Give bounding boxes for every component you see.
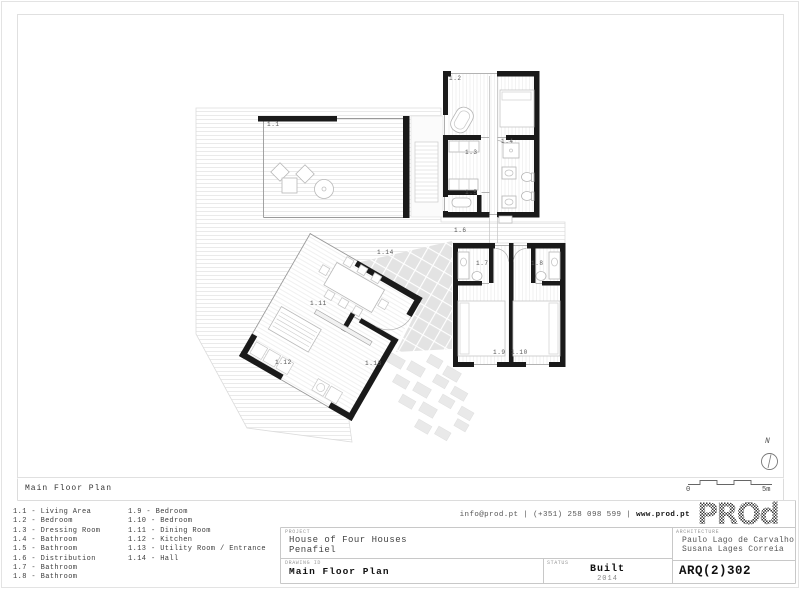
- project-location: Penafiel: [289, 545, 336, 555]
- scale-five-label: 5m: [762, 486, 770, 494]
- architecture-label: ARCHITECTURE: [676, 529, 719, 535]
- room-label-1-8: 1.8: [531, 260, 544, 267]
- legend-item: 1.7 - Bathroom: [13, 564, 100, 573]
- north-label: N: [765, 437, 770, 446]
- contact-plain: info@prod.pt | (+351) 258 098 599 |: [460, 511, 632, 519]
- legend-item: 1.5 - Bathroom: [13, 545, 100, 554]
- room-label-1-13: 1.13: [365, 360, 382, 367]
- website-link[interactable]: www.prod.pt: [636, 511, 690, 519]
- sheet-title-strip: Main Floor Plan: [25, 484, 112, 493]
- room-label-1-1: 1.1: [267, 121, 280, 128]
- status-value: Built: [543, 564, 672, 575]
- legend-item: 1.3 - Dressing Room: [13, 527, 100, 536]
- stairs: [411, 116, 443, 217]
- legend-item: 1.10 - Bedroom: [128, 517, 266, 526]
- legend-column-2: 1.9 - Bedroom 1.10 - Bedroom 1.11 - Dini…: [128, 508, 266, 564]
- legend-item: 1.12 - Kitchen: [128, 536, 266, 545]
- legend-item: 1.13 - Utility Room / Entrance: [128, 545, 266, 554]
- drawing-code: ARQ(2)302: [679, 564, 751, 578]
- room-label-1-4: 1.4: [501, 138, 514, 145]
- project-name: House of Four Houses: [289, 535, 407, 545]
- north-arrow: [762, 454, 778, 470]
- unit-twin-bedrooms: [453, 243, 566, 367]
- prod-logo: PROd: [697, 501, 797, 528]
- room-label-1-7: 1.7: [476, 260, 489, 267]
- room-label-1-9: 1.9: [493, 349, 506, 356]
- floor-plan-linework: [0, 0, 800, 589]
- drawing-sheet: 1.1 1.2 1.3 1.4 1.5 1.6 1.7 1.8 1.9 1.10…: [0, 0, 800, 589]
- legend-column-1: 1.1 - Living Area 1.2 - Bedroom 1.3 - Dr…: [13, 508, 100, 583]
- room-label-1-6: 1.6: [454, 227, 467, 234]
- architect-name-2: Susana Lages Correia: [682, 545, 784, 554]
- legend-item: 1.14 - Hall: [128, 555, 266, 564]
- room-label-1-5: 1.5: [465, 189, 478, 196]
- legend-item: 1.4 - Bathroom: [13, 536, 100, 545]
- legend-item: 1.1 - Living Area: [13, 508, 100, 517]
- legend-item: 1.6 - Distribution: [13, 555, 100, 564]
- room-label-1-10: 1.10: [511, 349, 528, 356]
- legend-item: 1.2 - Bedroom: [13, 517, 100, 526]
- room-label-1-12: 1.12: [275, 359, 292, 366]
- legend-item: 1.8 - Bathroom: [13, 573, 100, 582]
- room-label-1-3: 1.3: [465, 149, 478, 156]
- scale-zero-label: 0: [686, 486, 690, 494]
- scale-bar: [688, 481, 772, 485]
- contact-info: info@prod.pt | (+351) 258 098 599 | www.…: [380, 511, 690, 519]
- drawing-id-value: Main Floor Plan: [289, 566, 390, 577]
- unit-bedroom-suite: [443, 71, 540, 218]
- room-label-1-2: 1.2: [449, 75, 462, 82]
- room-label-1-11: 1.11: [310, 300, 327, 307]
- status-year: 2014: [543, 575, 672, 583]
- room-label-1-14: 1.14: [377, 249, 394, 256]
- legend-item: 1.11 - Dining Room: [128, 527, 266, 536]
- legend-item: 1.9 - Bedroom: [128, 508, 266, 517]
- architect-name-1: Paulo Lago de Carvalho: [682, 536, 794, 545]
